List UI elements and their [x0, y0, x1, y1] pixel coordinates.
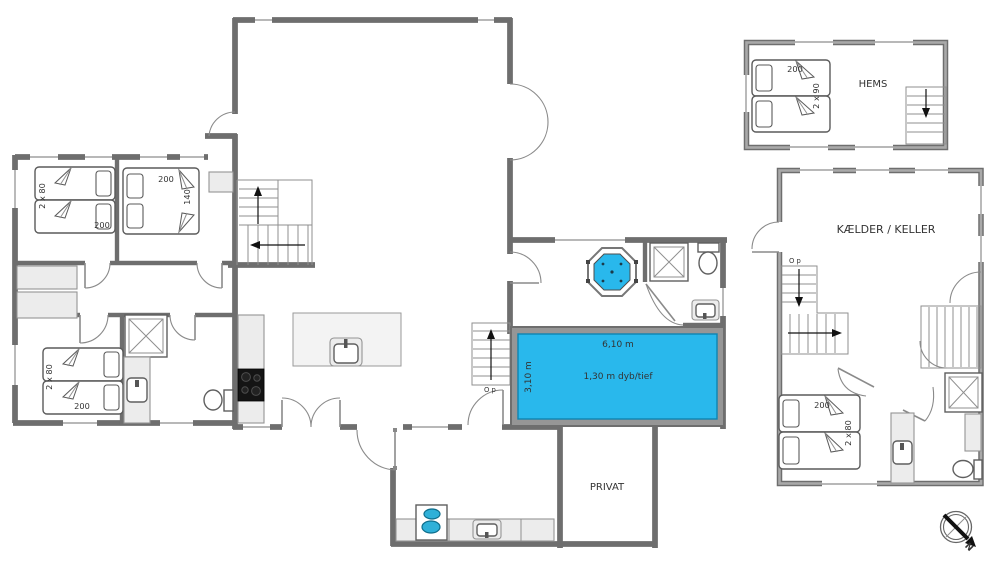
basement-bed-length-label: 200 [814, 400, 830, 410]
pool-length-label: 6,10 m [602, 340, 634, 350]
bedroom-n-length-label: 200 [158, 174, 174, 184]
bedroom-sw-width-label: 2 x 80 [44, 364, 54, 390]
shelf [965, 414, 981, 451]
closet [17, 292, 77, 318]
stairs-up-arrow [254, 186, 262, 196]
compass: N [941, 512, 977, 554]
stairs-turn-arrow [250, 241, 260, 249]
stove [416, 505, 447, 540]
closet [209, 172, 233, 192]
hems-room-label: HEMS [859, 79, 888, 90]
left-wing: 2 x 80 200 200 140 2 x 80 200 [17, 167, 233, 423]
french-doors-south [282, 398, 340, 427]
stairs-pool [472, 323, 510, 385]
toilet [698, 243, 719, 274]
bedroom-nw-length-label: 200 [94, 220, 110, 230]
floor-plan-svg: 2 x 80 200 200 140 2 x 80 200 [0, 0, 1000, 563]
hems-bed-length-label: 200 [787, 64, 803, 74]
basement-entry-door [752, 222, 779, 252]
bathroom-door [646, 284, 683, 325]
basement-bed-width-label: 2 x 80 [843, 420, 853, 446]
shower [125, 315, 167, 357]
annex: PRIVAT [357, 428, 625, 541]
sink [692, 300, 719, 320]
sink [893, 441, 912, 464]
pool-room-door [510, 252, 541, 283]
toilet [953, 460, 982, 479]
basement-stairs-note: O p [789, 257, 801, 265]
hems-bed-width-label: 2 x 90 [811, 83, 821, 109]
pool-depth-label: 1,30 m dyb/tief [583, 372, 653, 382]
hot-tub [586, 248, 638, 296]
floor-plan-page: 2 x 80 200 200 140 2 x 80 200 [0, 0, 1000, 563]
bedroom-n-width-label: 140 [182, 189, 192, 205]
french-doors-east [510, 84, 548, 160]
bed [35, 167, 115, 200]
basement-room-label: KÆLDER / KELLER [837, 223, 936, 236]
swimming-pool: 6,10 m 1,30 m dyb/tief 3,10 m [511, 327, 724, 426]
stairs-living-room [237, 180, 312, 265]
stairs-up-note: O p [484, 386, 496, 394]
toilet [204, 390, 233, 411]
bedroom-sw-length-label: 200 [74, 401, 90, 411]
bedroom-nw-width-label: 2 x 80 [37, 183, 47, 209]
pool-width-label: 3,10 m [524, 361, 534, 393]
bed [43, 348, 123, 381]
sink [330, 338, 362, 366]
shower [945, 373, 982, 412]
cooktop [238, 369, 264, 401]
sink [473, 520, 501, 539]
closet [17, 266, 77, 289]
privat-room-label: PRIVAT [590, 482, 625, 493]
patio-door [468, 390, 503, 425]
entrance-door-arc [209, 112, 235, 136]
shower [650, 243, 688, 281]
sink [127, 378, 147, 402]
pool-wing: O p 6,10 m 1,30 m dyb/tief 3,10 m [472, 243, 724, 426]
annex-door [357, 428, 397, 470]
